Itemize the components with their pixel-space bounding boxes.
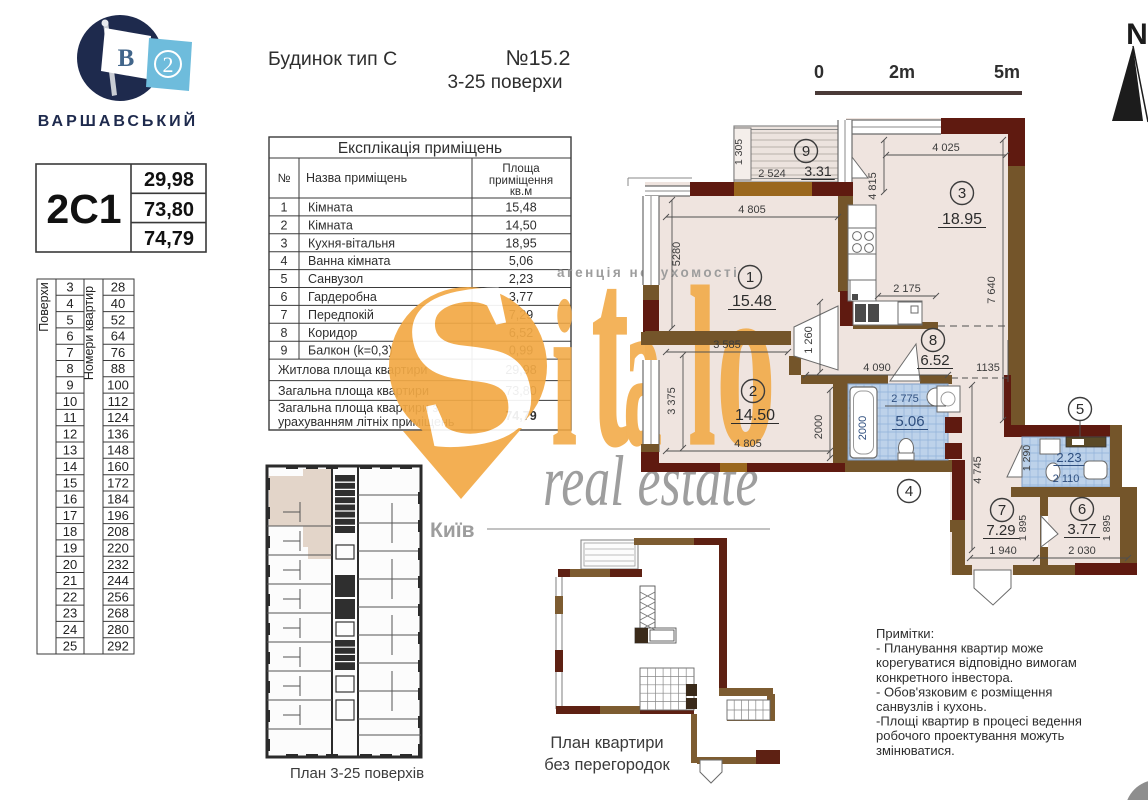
svg-text:- Планування квартир може: - Планування квартир може: [876, 641, 1043, 656]
svg-text:1 290: 1 290: [1021, 445, 1033, 471]
svg-text:корегуватися відповідно вимог: корегуватися відповідно вимогам: [876, 655, 1077, 670]
svg-text:2 524: 2 524: [758, 168, 786, 180]
svg-text:73,80: 73,80: [144, 199, 194, 221]
svg-text:2 175: 2 175: [893, 283, 921, 295]
svg-text:16: 16: [63, 492, 77, 507]
svg-text:2000: 2000: [857, 416, 869, 440]
svg-text:292: 292: [107, 638, 129, 653]
svg-text:29,98: 29,98: [144, 169, 194, 191]
svg-text:конкретного інвестора.: конкретного інвестора.: [876, 670, 1013, 685]
svg-text:19: 19: [63, 541, 77, 556]
svg-text:23: 23: [63, 606, 77, 621]
svg-text:256: 256: [107, 589, 129, 604]
svg-text:Будинок тип С: Будинок тип С: [268, 48, 397, 70]
svg-text:14.50: 14.50: [735, 407, 775, 424]
svg-text:52: 52: [111, 312, 125, 327]
svg-text:10: 10: [63, 394, 77, 409]
svg-text:7: 7: [66, 345, 73, 360]
svg-text:18: 18: [63, 524, 77, 539]
svg-text:№: №: [278, 171, 291, 185]
svg-text:1: 1: [746, 269, 754, 286]
svg-text:2: 2: [749, 383, 757, 400]
svg-text:2 775: 2 775: [891, 393, 919, 405]
svg-text:1 305: 1 305: [733, 139, 745, 165]
svg-text:112: 112: [108, 394, 129, 409]
svg-text:124: 124: [107, 410, 129, 425]
svg-text:5.06: 5.06: [895, 413, 924, 430]
svg-text:196: 196: [107, 508, 129, 523]
svg-text:88: 88: [111, 361, 125, 376]
svg-text:2: 2: [163, 52, 174, 77]
svg-text:3.77: 3.77: [1067, 521, 1096, 538]
svg-text:Кухня-вітальня: Кухня-вітальня: [308, 236, 395, 250]
svg-text:5: 5: [66, 312, 73, 327]
svg-text:208: 208: [107, 524, 129, 539]
svg-text:-Площі квартир в процесі веден: -Площі квартир в процесі ведення: [876, 714, 1082, 729]
svg-text:2 030: 2 030: [1068, 545, 1096, 557]
svg-text:4 090: 4 090: [863, 362, 891, 374]
svg-text:Номери квартир: Номери квартир: [82, 286, 96, 380]
svg-text:160: 160: [107, 459, 129, 474]
svg-text:20: 20: [63, 557, 77, 572]
svg-text:Гардеробна: Гардеробна: [308, 290, 377, 304]
svg-text:9: 9: [281, 344, 288, 358]
svg-text:1 260: 1 260: [803, 326, 815, 354]
svg-text:3: 3: [281, 236, 288, 250]
svg-text:1135: 1135: [976, 362, 1000, 374]
svg-text:ВАРШАВСЬКИЙ: ВАРШАВСЬКИЙ: [38, 111, 198, 130]
svg-text:Коридор: Коридор: [308, 326, 357, 340]
svg-text:7: 7: [998, 502, 1006, 519]
svg-text:21: 21: [63, 573, 77, 588]
svg-text:2m: 2m: [889, 62, 915, 82]
svg-text:2: 2: [281, 218, 288, 232]
svg-text:Площа: Площа: [502, 163, 540, 175]
svg-text:4 805: 4 805: [734, 438, 762, 450]
svg-text:25: 25: [63, 638, 77, 653]
svg-text:7.29: 7.29: [986, 522, 1015, 539]
svg-text:18.95: 18.95: [942, 211, 982, 228]
svg-text:24: 24: [63, 622, 77, 637]
svg-text:15,48: 15,48: [505, 201, 536, 215]
svg-text:кв.м: кв.м: [510, 186, 532, 198]
svg-text:змінюватися.: змінюватися.: [876, 743, 955, 758]
svg-text:Балкон (k=0,3): Балкон (k=0,3): [308, 344, 393, 358]
svg-text:Кімната: Кімната: [308, 218, 353, 232]
svg-text:6: 6: [1078, 501, 1086, 518]
svg-text:2 110: 2 110: [1053, 473, 1080, 485]
svg-text:4: 4: [66, 296, 73, 311]
svg-text:13: 13: [63, 443, 77, 458]
svg-text:Примітки:: Примітки:: [876, 626, 934, 641]
svg-text:5: 5: [281, 272, 288, 286]
svg-text:Експлікація приміщень: Експлікація приміщень: [338, 140, 502, 157]
svg-text:232: 232: [107, 557, 129, 572]
svg-text:268: 268: [107, 606, 129, 621]
svg-text:4: 4: [281, 254, 288, 268]
svg-text:3: 3: [958, 185, 966, 202]
svg-text:3.31: 3.31: [804, 163, 831, 179]
svg-text:40: 40: [111, 296, 125, 311]
svg-text:7: 7: [281, 308, 288, 322]
svg-text:8: 8: [929, 332, 937, 349]
svg-text:Кімната: Кімната: [308, 201, 353, 215]
svg-text:В: В: [118, 45, 135, 72]
svg-text:1 895: 1 895: [1101, 515, 1113, 541]
svg-text:8: 8: [281, 326, 288, 340]
svg-text:7 640: 7 640: [986, 276, 998, 304]
svg-text:136: 136: [107, 426, 129, 441]
svg-text:6: 6: [66, 329, 73, 344]
svg-text:12: 12: [63, 426, 77, 441]
svg-text:Санвузол: Санвузол: [308, 272, 363, 286]
svg-text:3 375: 3 375: [666, 387, 678, 415]
svg-text:Поверхи: Поверхи: [37, 282, 51, 331]
svg-text:74,79: 74,79: [144, 228, 194, 250]
svg-text:148: 148: [107, 443, 129, 458]
svg-text:3: 3: [66, 280, 73, 295]
svg-text:15.48: 15.48: [732, 293, 772, 310]
svg-text:санвузлів і кухонь.: санвузлів і кухонь.: [876, 699, 987, 714]
svg-text:N: N: [1126, 18, 1148, 51]
svg-text:Київ: Київ: [430, 519, 475, 542]
svg-text:2С1: 2С1: [46, 186, 121, 232]
svg-text:6.52: 6.52: [920, 352, 949, 369]
svg-text:9: 9: [66, 378, 73, 393]
svg-text:22: 22: [63, 589, 77, 604]
svg-text:4 815: 4 815: [867, 172, 879, 200]
svg-text:№15.2: №15.2: [506, 46, 571, 70]
svg-text:4 025: 4 025: [932, 142, 960, 154]
svg-text:S: S: [381, 227, 559, 503]
svg-text:14: 14: [63, 459, 77, 474]
svg-text:Передпокій: Передпокій: [308, 308, 374, 322]
svg-text:3-25 поверхи: 3-25 поверхи: [447, 72, 562, 93]
svg-text:14,50: 14,50: [505, 218, 536, 232]
svg-text:2000: 2000: [813, 415, 825, 439]
svg-text:2.23: 2.23: [1056, 450, 1081, 465]
svg-text:4 745: 4 745: [972, 456, 984, 484]
svg-text:робочого проектування можуть: робочого проектування можуть: [876, 728, 1065, 743]
svg-text:План 3-25 поверхів: План 3-25 поверхів: [290, 765, 424, 782]
svg-text:5m: 5m: [994, 62, 1020, 82]
svg-text:- Обов'язковим є розміщення: - Обов'язковим є розміщення: [876, 684, 1052, 699]
svg-text:4 805: 4 805: [738, 204, 766, 216]
svg-text:1 940: 1 940: [989, 545, 1017, 557]
svg-text:244: 244: [107, 573, 129, 588]
svg-text:280: 280: [107, 622, 129, 637]
svg-text:1 895: 1 895: [1017, 515, 1029, 541]
svg-text:172: 172: [107, 475, 129, 490]
svg-text:Назва приміщень: Назва приміщень: [306, 171, 407, 185]
svg-text:184: 184: [107, 492, 129, 507]
svg-text:5: 5: [1076, 401, 1084, 418]
svg-text:15: 15: [63, 475, 77, 490]
svg-text:4: 4: [905, 483, 913, 500]
svg-text:76: 76: [111, 345, 125, 360]
svg-text:Ванна кімната: Ванна кімната: [308, 254, 391, 268]
svg-text:220: 220: [107, 541, 129, 556]
svg-text:6: 6: [281, 290, 288, 304]
svg-text:100: 100: [107, 378, 129, 393]
svg-text:9: 9: [802, 143, 810, 160]
svg-text:без перегородок: без перегородок: [544, 756, 670, 774]
svg-text:5280: 5280: [671, 242, 683, 266]
svg-text:11: 11: [63, 410, 77, 425]
svg-text:28: 28: [111, 280, 125, 295]
svg-text:64: 64: [111, 329, 125, 344]
svg-text:3 585: 3 585: [713, 339, 741, 351]
svg-text:0: 0: [814, 62, 824, 82]
svg-text:8: 8: [66, 361, 73, 376]
svg-text:1: 1: [281, 201, 288, 215]
svg-text:План квартири: План квартири: [550, 734, 663, 752]
svg-text:17: 17: [63, 508, 77, 523]
